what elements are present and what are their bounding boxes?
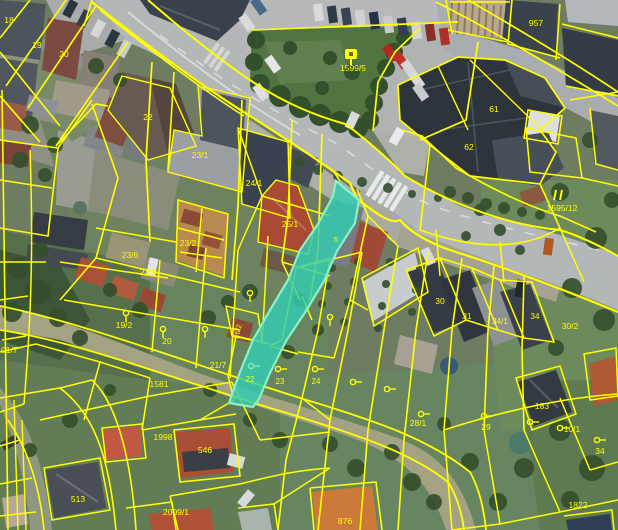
svg-text:23: 23 xyxy=(276,377,285,386)
svg-text:23/6: 23/6 xyxy=(122,250,139,260)
svg-text:25/1: 25/1 xyxy=(282,219,299,229)
svg-text:5: 5 xyxy=(334,235,338,244)
svg-text:31: 31 xyxy=(462,311,472,321)
svg-text:30/2: 30/2 xyxy=(562,321,579,331)
svg-text:24/1: 24/1 xyxy=(246,178,263,188)
svg-text:01/7: 01/7 xyxy=(1,345,18,355)
svg-text:20: 20 xyxy=(162,336,172,346)
svg-text:30: 30 xyxy=(435,296,445,306)
svg-text:20: 20 xyxy=(59,49,69,59)
svg-text:18: 18 xyxy=(4,15,14,25)
svg-text:1595/12: 1595/12 xyxy=(547,203,578,213)
svg-text:34: 34 xyxy=(595,446,605,456)
svg-text:1599/5: 1599/5 xyxy=(340,63,366,73)
svg-text:22: 22 xyxy=(246,375,255,384)
svg-text:34/1: 34/1 xyxy=(492,317,508,326)
svg-text:61: 61 xyxy=(489,104,499,114)
svg-text:957: 957 xyxy=(529,18,543,28)
svg-text:1822: 1822 xyxy=(569,500,588,510)
svg-text:23/2: 23/2 xyxy=(180,238,197,248)
svg-text:22: 22 xyxy=(143,112,153,122)
svg-text:1998: 1998 xyxy=(154,432,173,442)
svg-text:513: 513 xyxy=(71,494,85,504)
svg-text:34: 34 xyxy=(531,312,540,321)
svg-text:21/7: 21/7 xyxy=(210,360,227,370)
svg-text:23/4: 23/4 xyxy=(140,267,157,277)
svg-text:183: 183 xyxy=(535,401,549,411)
svg-text:62: 62 xyxy=(464,142,474,152)
svg-text:19: 19 xyxy=(32,40,42,50)
svg-text:24: 24 xyxy=(312,377,321,386)
svg-text:10/1: 10/1 xyxy=(564,424,581,434)
svg-text:546: 546 xyxy=(198,445,212,455)
svg-text:876: 876 xyxy=(338,516,352,526)
svg-text:23/1: 23/1 xyxy=(192,150,209,160)
svg-text:28/1: 28/1 xyxy=(410,418,427,428)
svg-text:1581: 1581 xyxy=(150,379,169,389)
svg-text:19/2: 19/2 xyxy=(116,320,133,330)
svg-text:29: 29 xyxy=(481,422,491,432)
svg-text:2009/1: 2009/1 xyxy=(163,507,189,517)
